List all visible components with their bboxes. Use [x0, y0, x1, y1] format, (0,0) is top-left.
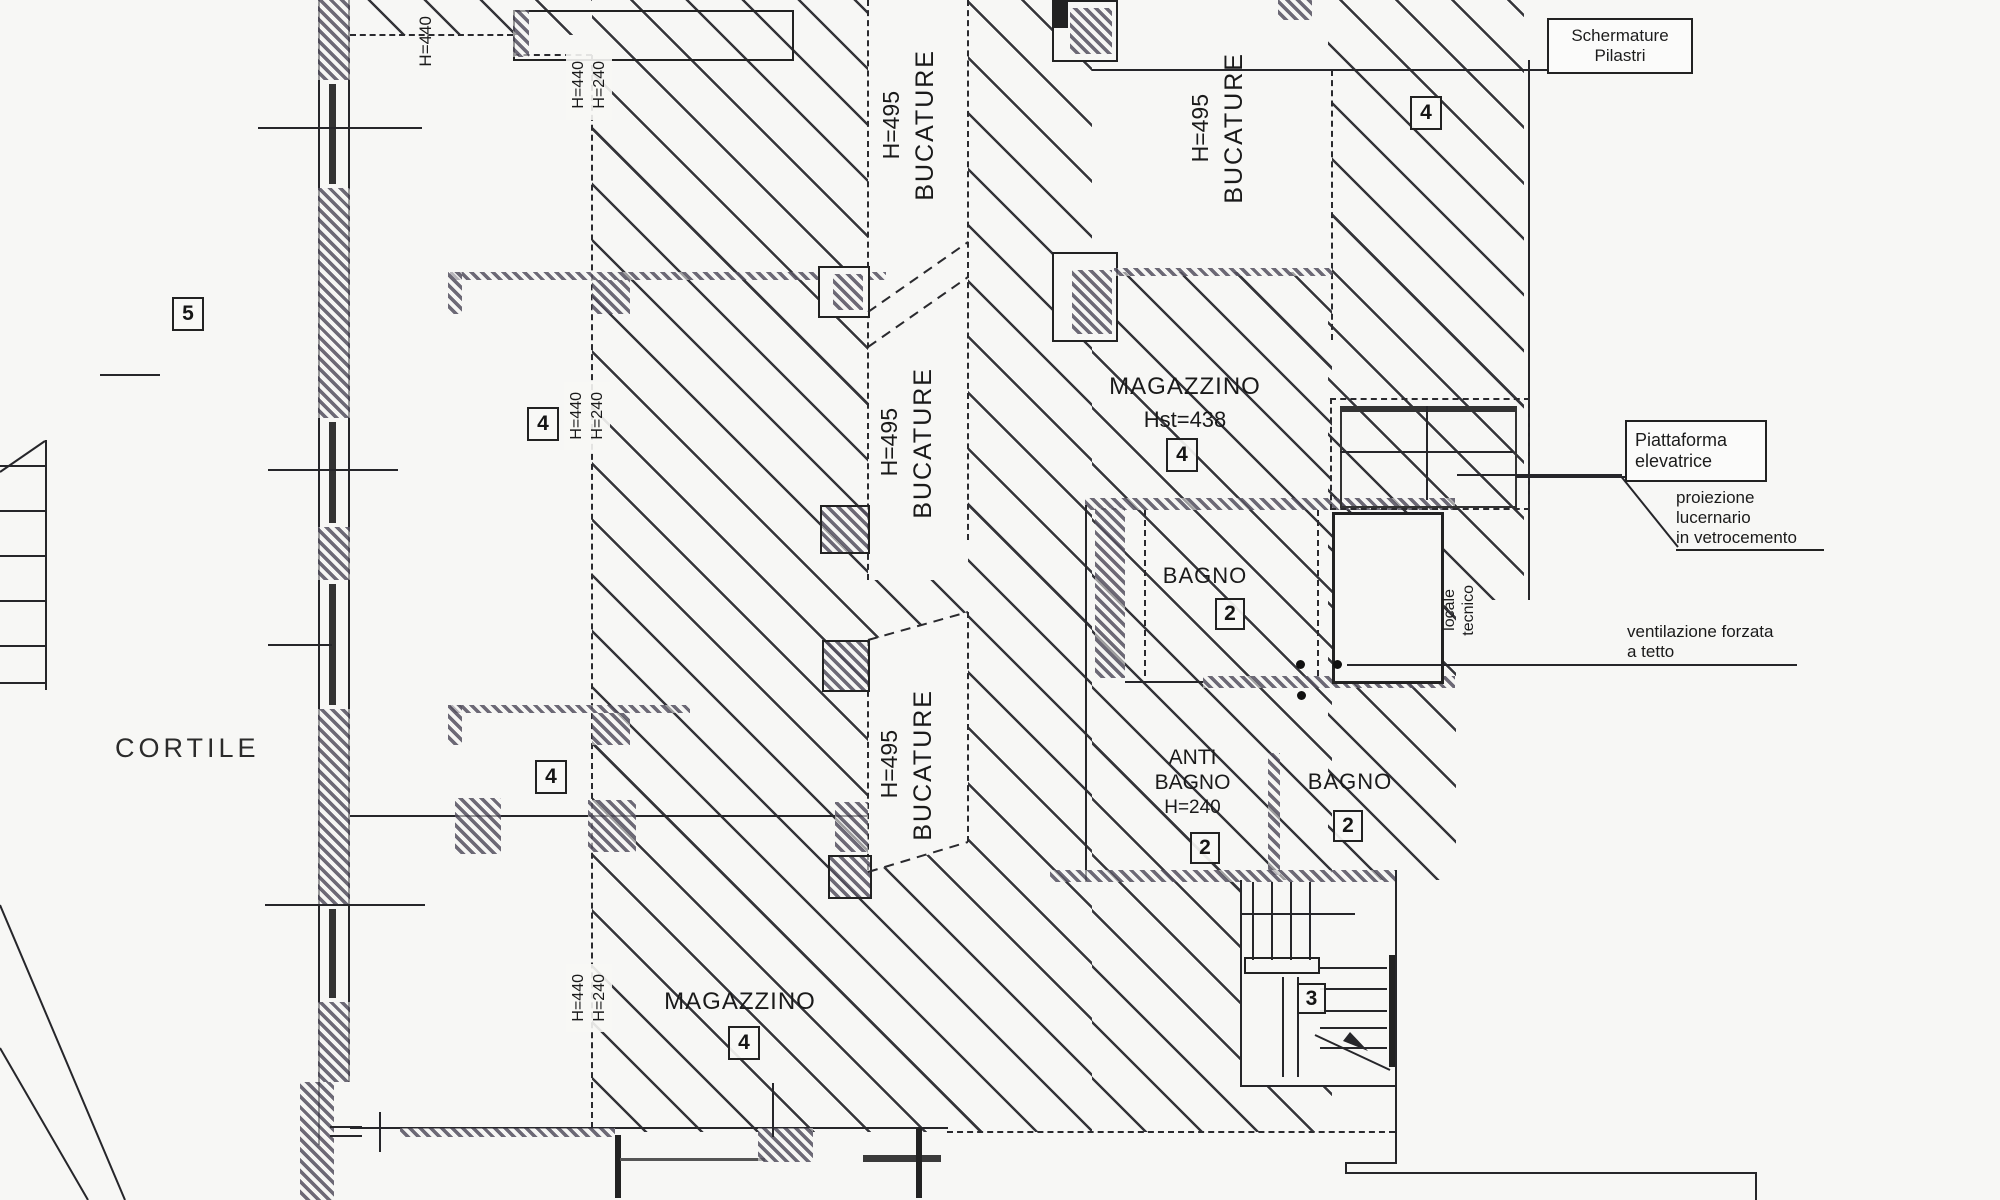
- stair-tread: [1320, 1027, 1387, 1029]
- zone-tag-room-lower: 4: [535, 760, 567, 794]
- stair-tread: [0, 600, 46, 602]
- stair-tread: [0, 645, 46, 647]
- bucature-name: BUCATURE: [1220, 52, 1249, 204]
- dashed-line: [967, 612, 969, 842]
- stairs-group: 3: [1240, 880, 1397, 1085]
- bucature-name: BUCATURE: [911, 49, 940, 201]
- threshold-line: [620, 1158, 765, 1161]
- schermature-callout: Schermature Pilastri: [1547, 18, 1693, 74]
- vent-point: [1296, 660, 1305, 669]
- stair-tread: [1320, 967, 1387, 969]
- ventilazione-line2: a tetto: [1627, 642, 1773, 662]
- pier-solid: [1052, 0, 1068, 28]
- sill-line: [330, 1135, 362, 1137]
- proiezione-callout: proiezione lucernario in vetrocemento: [1676, 488, 1824, 551]
- facade-pier: [318, 188, 350, 418]
- magazzino-main-height: Hst=438: [1080, 408, 1290, 432]
- stair-tread: [1271, 882, 1273, 960]
- vent-point: [1333, 660, 1342, 669]
- interior-wall-cap: [448, 272, 462, 314]
- zone-tag-stairs: 3: [1297, 983, 1326, 1014]
- hatch-region-center: [592, 0, 1092, 1132]
- pier-cluster-fill: [1072, 270, 1112, 334]
- tag-value: 5: [182, 302, 194, 326]
- interior-pier: [588, 800, 636, 852]
- window-axis-tick: [268, 644, 332, 646]
- bagno-upper-name: BAGNO: [1150, 564, 1260, 588]
- h240-text: H=240: [589, 392, 607, 440]
- stair-handrail: [1244, 957, 1320, 974]
- bucature-height: H=495: [1187, 94, 1214, 162]
- dimension-tick: [379, 1112, 381, 1152]
- bucature-label-top-right: H=495 BUCATURE: [1183, 48, 1253, 208]
- stair-room-bottom: [1240, 1085, 1397, 1087]
- pier-cluster: [820, 505, 870, 554]
- interior-pier: [592, 713, 630, 745]
- stair-tread: [1320, 988, 1387, 990]
- window-axis-tick: [258, 127, 422, 129]
- bagno-door-line: [1125, 681, 1203, 683]
- bucature-height: H=495: [878, 91, 905, 159]
- dimension-tick: [772, 1083, 774, 1137]
- facade-window: [329, 909, 336, 998]
- zone-tag-stairs-value: 3: [1306, 987, 1318, 1011]
- h440-text: H=440: [568, 392, 586, 440]
- bottom-step-line: [1345, 1162, 1397, 1164]
- piattaforma-callout: Piattaforma elevatrice: [1625, 420, 1767, 482]
- tag-value: 4: [1420, 101, 1432, 125]
- h240-text: H=240: [591, 61, 609, 109]
- interior-pier: [455, 798, 501, 854]
- pier-cluster: [828, 855, 872, 899]
- dashed-line: [1331, 70, 1333, 340]
- stair-tread: [0, 682, 46, 684]
- proiezione-line3: in vetrocemento: [1676, 528, 1824, 551]
- courtyard-label: CORTILE: [115, 733, 260, 764]
- stair-tread: [1309, 882, 1311, 960]
- h240-text: H=240: [591, 974, 609, 1022]
- antibagno-line1: ANTI: [1145, 748, 1240, 768]
- bucature-label-bottom: H=495 BUCATURE: [870, 672, 944, 857]
- bucature-label-top: H=495 BUCATURE: [872, 25, 946, 225]
- external-stair-edge: [45, 440, 47, 690]
- locale-line2: tecnico: [1460, 585, 1478, 636]
- bucature-label-middle: H=495 BUCATURE: [870, 350, 944, 535]
- magazzino-lower-name: MAGAZZINO: [640, 988, 840, 1016]
- magazzino-main-tag: 4: [1166, 438, 1198, 472]
- antibagno-divider: [1268, 753, 1280, 875]
- pier-solid: [1278, 0, 1312, 20]
- antibagno-line2: BAGNO: [1140, 772, 1245, 794]
- door-sill: [863, 1155, 941, 1162]
- beam-end: [513, 10, 529, 57]
- tag-value: 4: [738, 1031, 750, 1055]
- pier-cluster-fill: [833, 274, 863, 310]
- zone-tag-room-upper: 4: [527, 407, 559, 441]
- locale-line1: locale: [1441, 589, 1459, 631]
- door-jamb: [615, 1135, 621, 1198]
- platform-grid-line: [1340, 451, 1513, 453]
- interior-wall: [1114, 268, 1332, 276]
- bucature-name: BUCATURE: [909, 689, 938, 841]
- magazzino-main-name: MAGAZZINO: [1080, 374, 1290, 400]
- zone-tag-schermature: 4: [1410, 96, 1442, 130]
- interior-wall: [450, 705, 690, 713]
- bottom-wall-pier: [758, 1128, 813, 1162]
- stair-landing-line: [1240, 913, 1355, 915]
- beam-outline: [513, 10, 794, 61]
- facade-pier: [300, 1082, 334, 1200]
- dashed-line: [947, 1131, 1395, 1133]
- bucature-height: H=495: [876, 408, 903, 476]
- platform-grid-line: [1426, 406, 1428, 500]
- window-axis-tick: [268, 469, 398, 471]
- dashed-line: [1317, 510, 1319, 676]
- ventilazione-line1: ventilazione forzata: [1627, 622, 1773, 642]
- window-axis-tick: [100, 374, 160, 376]
- h440-text: H=440: [570, 974, 588, 1022]
- tag-value: 4: [537, 412, 549, 436]
- interior-wall-cap: [448, 705, 462, 745]
- bucature-name: BUCATURE: [909, 367, 938, 519]
- facade-pier: [318, 709, 350, 905]
- h440-text: H=440: [416, 16, 436, 67]
- proiezione-leader: [1457, 474, 1622, 476]
- bottom-outline: [1755, 1172, 1757, 1200]
- bagno-lower-tag: 2: [1333, 810, 1363, 842]
- stair-tread: [0, 510, 46, 512]
- bottom-wall-band: [400, 1128, 615, 1137]
- height-label-pair-top: H=440 H=240: [566, 50, 612, 120]
- proiezione-line1: proiezione: [1676, 488, 1824, 508]
- h440-text: H=440: [570, 61, 588, 109]
- facade-pier: [318, 0, 350, 80]
- locale-tecnico-label: locale tecnico: [1438, 548, 1480, 672]
- ventilazione-callout: ventilazione forzata a tetto: [1627, 622, 1773, 662]
- vent-point: [1297, 691, 1306, 700]
- tag-value: 2: [1199, 836, 1211, 860]
- stair-tread: [0, 555, 46, 557]
- bagno-upper-tag: 2: [1215, 598, 1245, 630]
- tag-value: 2: [1224, 602, 1236, 626]
- window-axis-tick: [265, 904, 425, 906]
- schermature-text: Schermature Pilastri: [1549, 26, 1691, 66]
- antibagno-height: H=240: [1145, 798, 1240, 818]
- right-boundary: [1528, 60, 1530, 600]
- proiezione-line2: lucernario: [1676, 508, 1824, 528]
- ventilazione-leader: [1347, 664, 1797, 666]
- interior-pier: [592, 280, 630, 314]
- stair-tread: [1290, 882, 1292, 960]
- zone-tag-cortile: 5: [172, 297, 204, 331]
- piattaforma-line1: Piattaforma: [1635, 430, 1727, 451]
- height-label-h440-top: H=440: [416, 16, 440, 88]
- facade-pier: [318, 1002, 350, 1082]
- pier-cluster: [822, 640, 870, 692]
- interior-pier: [835, 802, 868, 852]
- antibagno-tag: 2: [1190, 832, 1220, 864]
- facade-window: [329, 84, 336, 184]
- stair-tread: [1320, 1047, 1387, 1049]
- stair-tread: [1252, 882, 1254, 960]
- bottom-outline: [1345, 1172, 1757, 1174]
- magazzino-lower-tag: 4: [728, 1026, 760, 1060]
- piattaforma-leader: [1516, 476, 1625, 478]
- hatch-region-right-band: [1328, 0, 1524, 600]
- stair-tread: [1320, 1010, 1387, 1012]
- stair-rail: [1282, 977, 1284, 1077]
- bagno-lower-name: BAGNO: [1295, 770, 1405, 794]
- piattaforma-line2: elevatrice: [1635, 451, 1712, 472]
- door-jamb: [916, 1128, 922, 1198]
- bucature-height: H=495: [876, 730, 903, 798]
- floor-plan-canvas: 3 H=495 BUCATURE H=495 BUCATURE H=495 BU…: [0, 0, 2000, 1200]
- bagno-left-edge: [1085, 505, 1087, 882]
- bagno-left-column: [1095, 508, 1125, 678]
- platform-frame: [1340, 406, 1517, 508]
- facade-pier: [318, 527, 350, 580]
- height-label-pair-middle: H=440 H=240: [564, 382, 610, 450]
- facade-window: [329, 422, 336, 523]
- dashed-line: [967, 0, 969, 540]
- dashed-line: [1144, 510, 1146, 676]
- tag-value: 2: [1342, 814, 1354, 838]
- height-label-pair-bottom: H=440 H=240: [566, 964, 612, 1032]
- tag-value: 4: [1176, 443, 1188, 467]
- stair-tread: [0, 465, 46, 467]
- locale-tecnico-room: [1332, 512, 1444, 684]
- pier-cluster-fill: [1070, 8, 1112, 54]
- tag-value: 4: [545, 765, 557, 789]
